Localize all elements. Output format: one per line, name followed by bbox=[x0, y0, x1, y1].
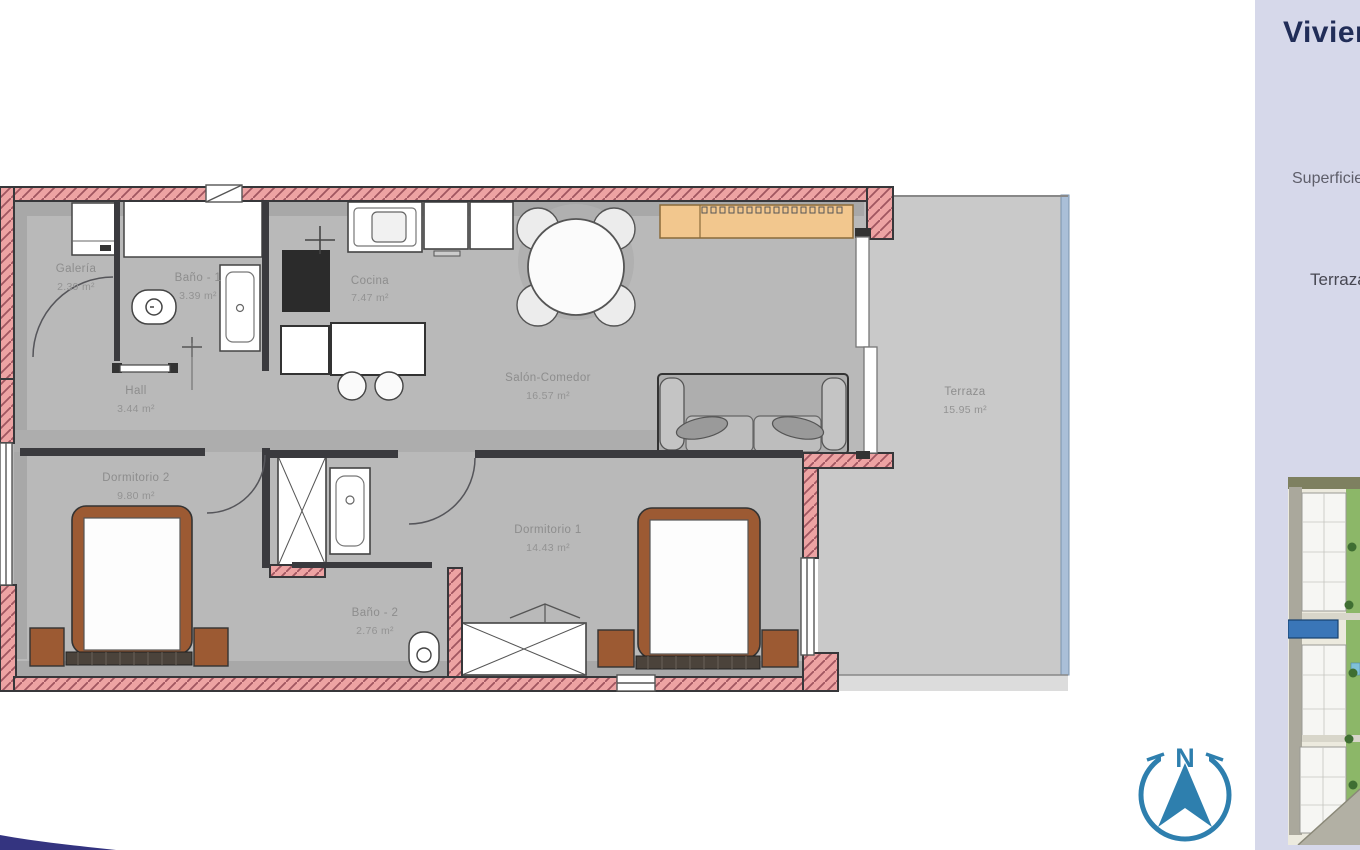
room-label-salon: Salón-Comedor bbox=[505, 372, 591, 384]
bath1-sink bbox=[220, 265, 260, 351]
superficie-label: Superficie bbox=[1292, 170, 1360, 188]
logo-swoosh bbox=[0, 835, 116, 850]
sideboard bbox=[660, 205, 853, 238]
north-arrow-icon bbox=[1158, 763, 1212, 827]
room-area-hall: 3.44 m² bbox=[117, 403, 155, 415]
room-label-hall: Hall bbox=[125, 385, 146, 397]
room-label-dorm1: Dormitorio 1 bbox=[514, 524, 581, 536]
room-area-bano2: 2.76 m² bbox=[356, 625, 394, 637]
wardrobe-hall bbox=[278, 456, 326, 566]
washing-machine bbox=[72, 203, 118, 255]
panel-title: Vivienda bbox=[1283, 16, 1360, 50]
bath1-sliding-door bbox=[112, 363, 178, 373]
site-unit-highlight bbox=[1288, 620, 1338, 638]
sofa bbox=[658, 374, 848, 454]
room-label-bano1: Baño - 1 bbox=[175, 272, 222, 284]
bath1-toilet bbox=[132, 290, 176, 324]
toilet-bath2 bbox=[409, 632, 439, 672]
room-label-terraza: Terraza bbox=[944, 386, 985, 398]
room-area-salon: 16.57 m² bbox=[526, 390, 570, 402]
floor-plan: Galería 2.39 m² Baño - 1 3.39 m² Cocina … bbox=[0, 0, 1360, 850]
room-area-terraza: 15.95 m² bbox=[943, 404, 987, 416]
room-area-galeria: 2.39 m² bbox=[57, 281, 95, 293]
room-area-bano1: 3.39 m² bbox=[179, 290, 217, 302]
kitchen-column bbox=[282, 250, 330, 312]
bath1-shower bbox=[124, 201, 262, 257]
room-area-cocina: 7.47 m² bbox=[351, 292, 389, 304]
room-label-bano2: Baño - 2 bbox=[352, 607, 399, 619]
terraza-label: Terraza bbox=[1310, 270, 1360, 290]
north-compass: N bbox=[1141, 740, 1229, 839]
room-area-dorm1: 14.43 m² bbox=[526, 542, 570, 554]
info-panel: Vivienda Superficie Terraza bbox=[1255, 0, 1360, 850]
room-label-galeria: Galería bbox=[56, 263, 97, 275]
bathtub-bath2 bbox=[330, 468, 370, 554]
dining-set bbox=[517, 208, 635, 326]
room-area-dorm2: 9.80 m² bbox=[117, 490, 155, 502]
room-label-cocina: Cocina bbox=[351, 275, 389, 287]
room-label-dorm2: Dormitorio 2 bbox=[102, 472, 169, 484]
site-plan-thumbnail bbox=[1288, 477, 1360, 845]
